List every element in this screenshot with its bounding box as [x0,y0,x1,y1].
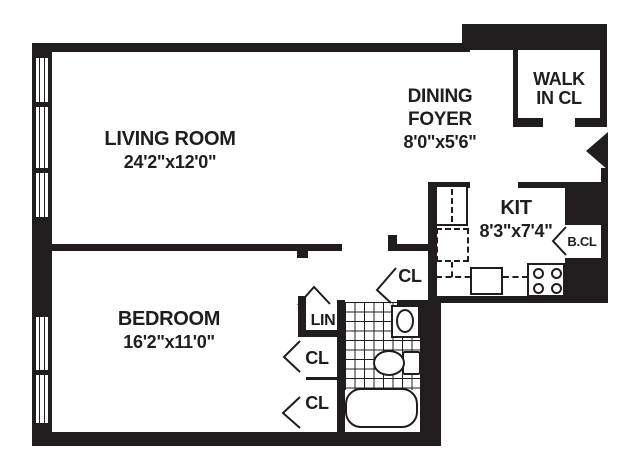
wall-bath-right [420,300,441,443]
living-room-dims: 24'2"x12'0" [70,151,270,174]
refrigerator-divider [451,189,453,222]
wall-closet-divider [306,377,340,380]
wall-wic-bottom-left [513,118,543,127]
wall-right-entry [601,168,608,192]
wall-bedroom-door-jamb [297,251,308,258]
kitchen-sink-fixture [470,267,503,295]
bedroom-closet2-label: CL [300,393,334,413]
wall-right-upper [600,50,607,127]
bedroom-dims: 16'2"x11'0" [69,331,269,354]
broom-closet-name: B.CL [567,234,596,249]
living-room-name: LIVING ROOM [70,128,270,151]
bedroom-closet2-name: CL [305,393,328,413]
burner-icon [533,268,544,279]
kitchen-label: KIT 8'3"x7'4" [456,197,576,243]
toilet-bowl-icon [373,350,405,376]
broom-closet-label: B.CL [562,234,602,250]
burner-icon [551,283,562,294]
sink-basin-icon [396,309,414,333]
wall-top [32,43,470,52]
dining-foyer-name: DINING FOYER [384,85,496,131]
hall-closet-label: CL [393,266,427,286]
walk-in-closet-name: WALK IN CL [533,69,585,108]
wall-hall-stub [388,235,397,251]
wall-wic-left [513,50,518,127]
bedroom-label: BEDROOM 16'2"x11'0" [69,308,269,354]
window [36,107,48,168]
wall-bedroom-north [48,244,342,251]
bedroom-closet1-label: CL [300,348,334,368]
window [36,375,48,423]
window [36,173,48,217]
burner-icon [533,283,544,294]
dining-foyer-label: DINING FOYER 8'0"x5'6" [384,85,496,154]
floor-plan: LIVING ROOM 24'2"x12'0" DINING FOYER 8'0… [0,0,640,464]
walk-in-closet-label: WALK IN CL [527,70,591,108]
living-room-label: LIVING ROOM 24'2"x12'0" [70,128,270,174]
wall-bottom [32,432,441,446]
window [36,317,48,370]
burner-icon [551,268,562,279]
wall-kitchen-bottom [428,296,608,303]
linen-closet-label: LIN [305,312,341,330]
entry-door-icon [586,132,608,170]
wall-linen-bottom [298,330,344,337]
bathtub-fixture [345,388,418,428]
linen-closet-name: LIN [311,312,336,329]
bedroom-name: BEDROOM [69,308,269,331]
dining-foyer-dims: 8'0"x5'6" [384,131,496,154]
bedroom-closet1-door-icon [284,341,300,372]
counter-dashed-vertical [451,262,453,277]
bedroom-closet2-door-icon [283,397,300,428]
stove-fixture [527,263,565,297]
bedroom-closet1-name: CL [305,348,328,368]
bathroom-sink-fixture [391,305,420,338]
kitchen-name: KIT [456,197,576,220]
hall-closet-name: CL [398,266,421,286]
wall-top-raised [462,24,607,50]
window [36,58,48,102]
kitchen-dims: 8'3"x7'4" [456,220,576,243]
